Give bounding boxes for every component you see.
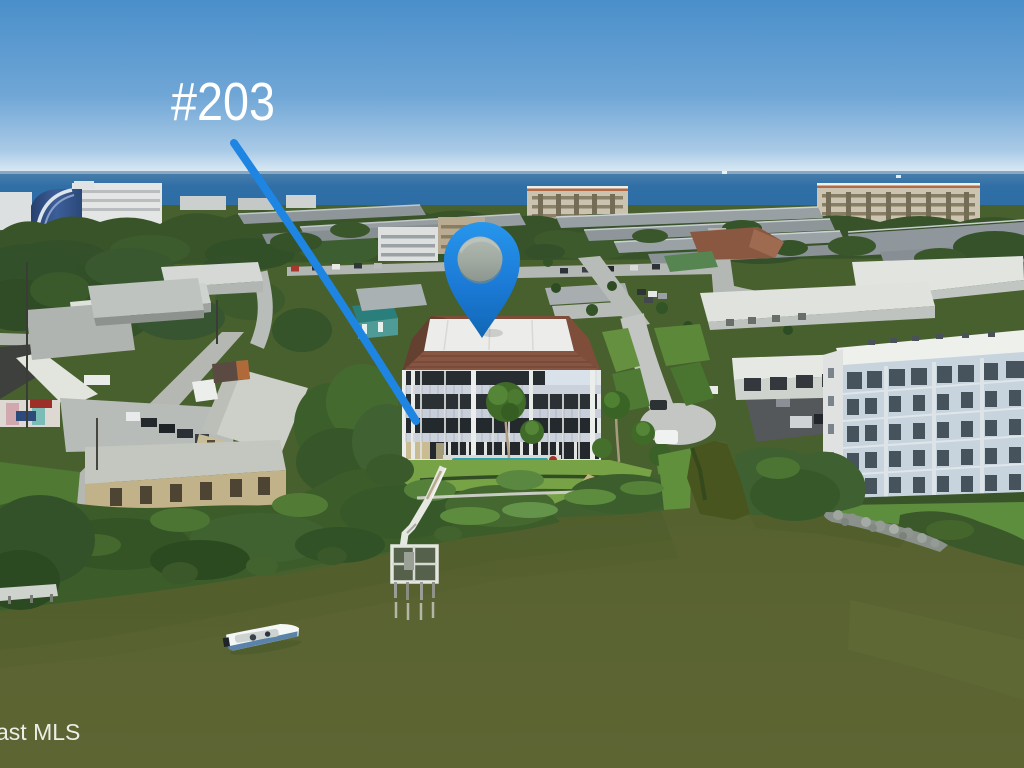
- svg-text:#203: #203: [171, 72, 275, 132]
- svg-text:ast MLS: ast MLS: [0, 719, 80, 745]
